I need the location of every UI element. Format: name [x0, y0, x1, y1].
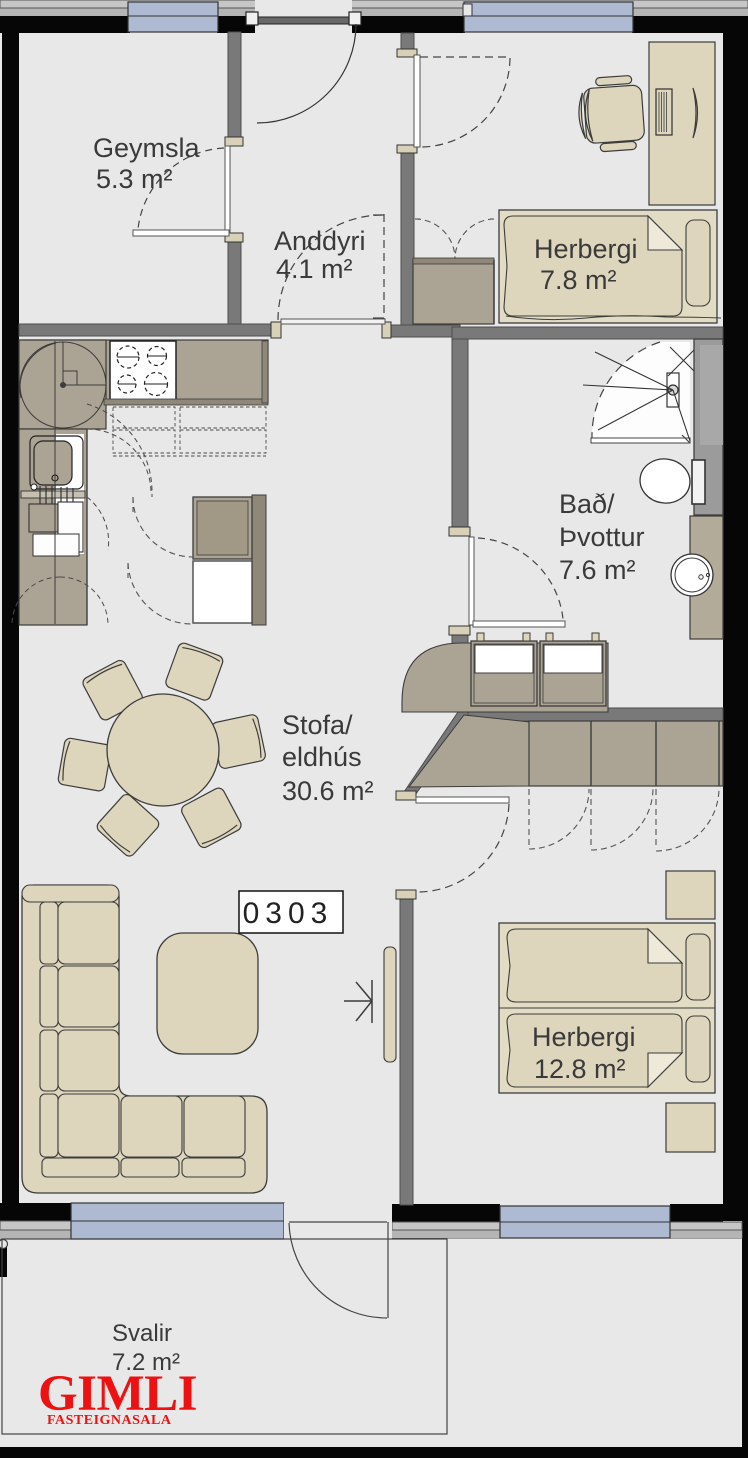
svg-text:30.6 m²: 30.6 m²	[282, 776, 374, 806]
svg-text:Svalir: Svalir	[112, 1320, 172, 1347]
svg-text:7.6 m²: 7.6 m²	[559, 555, 636, 585]
svg-text:5.3 m²: 5.3 m²	[96, 164, 173, 194]
svg-text:12.8 m²: 12.8 m²	[534, 1054, 626, 1084]
svg-text:Anddyri: Anddyri	[274, 226, 366, 256]
svg-text:eldhús: eldhús	[282, 742, 362, 772]
svg-text:0303: 0303	[243, 897, 334, 930]
svg-text:Bað/: Bað/	[559, 489, 615, 519]
svg-text:Herbergi: Herbergi	[534, 234, 638, 264]
svg-text:FASTEIGNASALA: FASTEIGNASALA	[47, 1413, 172, 1428]
svg-text:Stofa/: Stofa/	[282, 710, 353, 740]
svg-text:Geymsla: Geymsla	[93, 133, 201, 163]
svg-text:4.1 m²: 4.1 m²	[276, 254, 353, 284]
svg-text:Þvottur: Þvottur	[559, 522, 645, 552]
svg-text:7.8 m²: 7.8 m²	[540, 265, 617, 295]
svg-text:Herbergi: Herbergi	[532, 1022, 636, 1052]
